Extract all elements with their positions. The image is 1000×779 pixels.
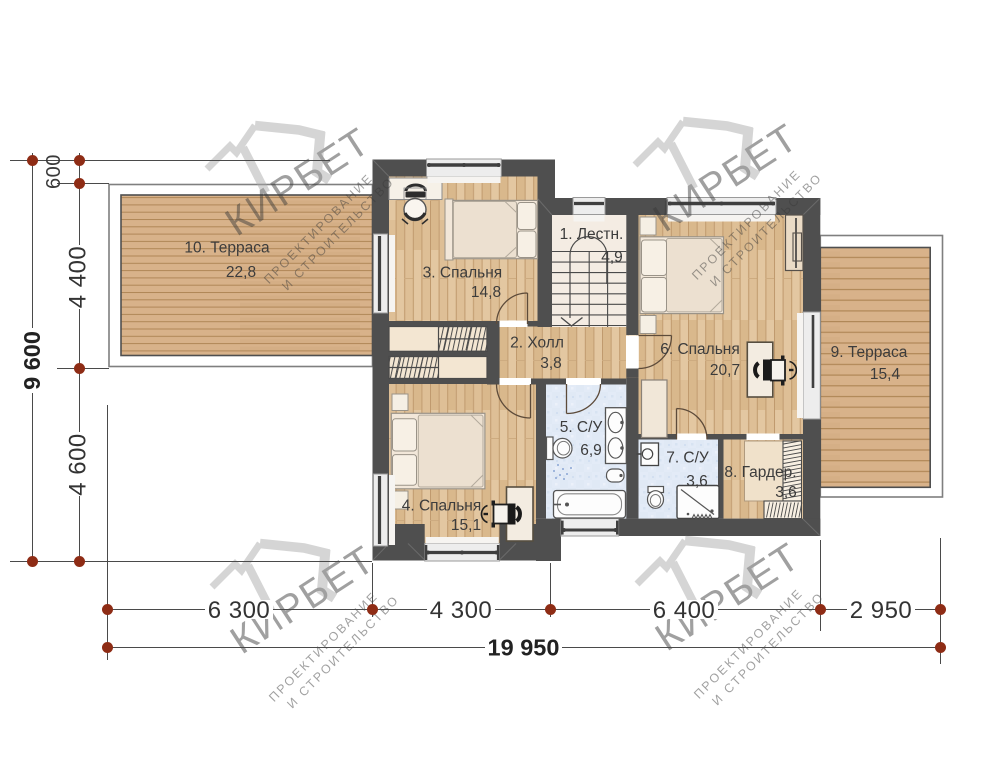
svg-text:6 300: 6 300 — [208, 597, 271, 624]
svg-text:4 300: 4 300 — [430, 597, 493, 624]
svg-text:10. Терраса: 10. Терраса — [184, 240, 270, 257]
svg-text:2 950: 2 950 — [850, 597, 913, 624]
svg-text:5. С/У: 5. С/У — [560, 419, 603, 436]
svg-text:8. Гардер.: 8. Гардер. — [724, 464, 796, 481]
svg-text:4 400: 4 400 — [65, 246, 92, 309]
svg-text:15,1: 15,1 — [451, 517, 481, 534]
svg-text:22,8: 22,8 — [226, 264, 256, 281]
svg-text:2. Холл: 2. Холл — [510, 335, 564, 352]
svg-text:3,8: 3,8 — [540, 355, 562, 372]
svg-text:6,9: 6,9 — [580, 442, 602, 459]
svg-text:6. Спальня: 6. Спальня — [660, 341, 740, 358]
svg-text:14,8: 14,8 — [471, 284, 501, 301]
svg-text:4. Спальня: 4. Спальня — [402, 498, 482, 515]
svg-text:19 950: 19 950 — [488, 635, 560, 661]
svg-text:7. С/У: 7. С/У — [666, 450, 709, 467]
svg-text:9. Терраса: 9. Терраса — [831, 344, 908, 361]
svg-text:20,7: 20,7 — [710, 362, 740, 379]
svg-text:9 600: 9 600 — [19, 331, 45, 390]
svg-text:3,6: 3,6 — [775, 484, 797, 501]
svg-text:3,6: 3,6 — [686, 473, 708, 490]
svg-text:4,9: 4,9 — [601, 249, 623, 266]
svg-text:1. Лестн.: 1. Лестн. — [560, 226, 624, 243]
svg-text:4 600: 4 600 — [65, 433, 92, 496]
svg-text:6 400: 6 400 — [653, 597, 716, 624]
svg-text:15,4: 15,4 — [870, 366, 901, 383]
svg-text:600: 600 — [43, 154, 65, 189]
svg-text:3. Спальня: 3. Спальня — [423, 264, 503, 281]
